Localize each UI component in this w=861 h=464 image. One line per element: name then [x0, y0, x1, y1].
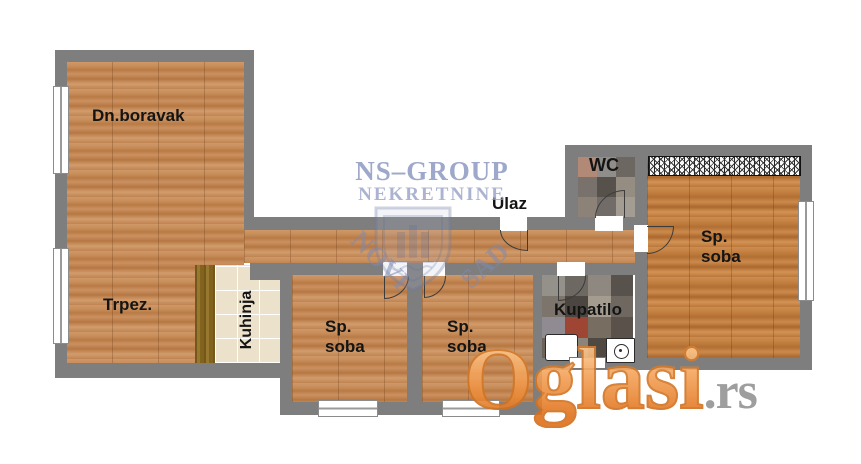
wall-wc-right-lower	[635, 252, 647, 358]
floor-plan: Dn.boravak Trpez. Kuhinja Sp. soba Sp. s…	[0, 0, 861, 464]
wall-hall-top	[244, 217, 647, 230]
kitchen-counter	[195, 265, 215, 363]
washer-drum-dot-icon	[619, 349, 622, 352]
room-label-bedroom-main-line2: soba	[701, 247, 741, 267]
room-label-kitchen: Kuhinja	[237, 270, 257, 370]
window-bedroom2	[442, 400, 500, 417]
window-bedroom-main	[798, 201, 814, 301]
wall-top-left	[55, 50, 254, 62]
watermark-agency: NS–GROUP NEKRETNINE	[350, 157, 514, 205]
wardrobe-icon	[648, 156, 801, 176]
watermark-agency-name: NS–GROUP	[350, 157, 514, 185]
wall-wc-left	[565, 145, 578, 230]
room-label-living: Dn.boravak	[92, 106, 185, 126]
window-living	[53, 86, 69, 174]
bedroom2-door-opening	[423, 262, 445, 276]
wc-door-opening	[595, 216, 623, 231]
washer-drum-icon	[614, 344, 629, 359]
hallway-floor	[244, 230, 635, 263]
room-label-bedroom1-line2: soba	[325, 337, 365, 357]
room-label-dining: Trpez.	[103, 295, 152, 315]
window-dining	[53, 248, 69, 344]
watermark-agency-subtitle: NEKRETNINE	[350, 185, 514, 205]
room-label-wc: WC	[589, 155, 619, 175]
bedroom-main-door-opening	[634, 225, 648, 252]
wall-wc-right-upper	[635, 145, 647, 225]
room-label-bedroom1: Sp. soba	[325, 317, 365, 357]
wall-bedroom2-right	[533, 263, 542, 415]
wall-bedroom-divider	[407, 263, 422, 415]
window-bedroom1	[318, 400, 378, 417]
bathroom-door-opening	[557, 262, 585, 276]
watermark-site-domain: .rs	[704, 363, 757, 420]
wall-kitchen-right	[280, 263, 292, 415]
room-label-bathroom: Kupatilo	[542, 300, 634, 320]
wall-living-right	[244, 50, 254, 217]
entrance-door-opening	[500, 216, 527, 231]
room-label-bedroom-main-line1: Sp.	[701, 227, 741, 247]
room-label-bedroom-main: Sp. soba	[701, 227, 741, 267]
room-label-bedroom2-line2: soba	[447, 337, 487, 357]
room-label-bedroom2: Sp. soba	[447, 317, 487, 357]
bathroom-sink-icon	[569, 357, 606, 369]
bedroom1-door-opening	[383, 262, 407, 276]
wall-hall-bottom	[250, 263, 647, 275]
room-label-entrance: Ulaz	[492, 194, 527, 214]
room-label-bedroom2-line1: Sp.	[447, 317, 487, 337]
washing-machine-icon	[606, 338, 635, 363]
room-label-bedroom1-line1: Sp.	[325, 317, 365, 337]
